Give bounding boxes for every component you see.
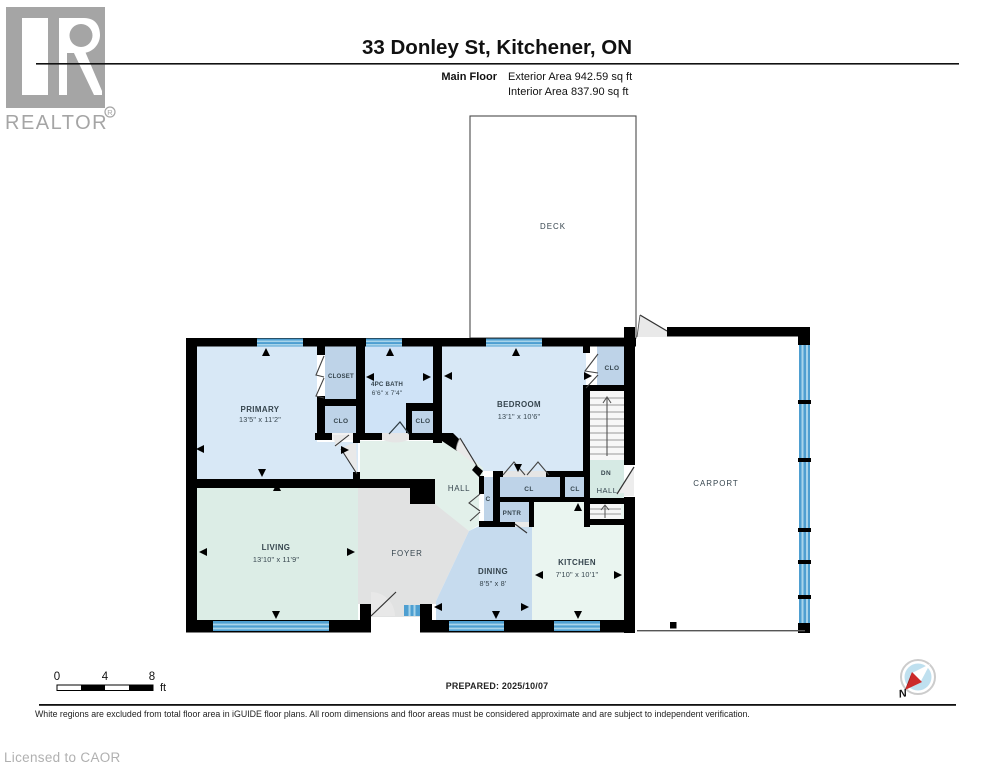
svg-text:White regions are excluded fro: White regions are excluded from total fl… — [35, 709, 750, 719]
svg-text:DECK: DECK — [540, 222, 566, 231]
svg-text:CARPORT: CARPORT — [693, 479, 738, 488]
svg-text:CLO: CLO — [416, 418, 431, 425]
svg-text:PRIMARY: PRIMARY — [241, 405, 280, 414]
svg-text:8: 8 — [149, 671, 155, 683]
svg-text:13'1" x 10'6": 13'1" x 10'6" — [498, 412, 541, 421]
svg-text:DINING: DINING — [478, 567, 508, 576]
svg-text:CLOSET: CLOSET — [328, 373, 354, 380]
svg-text:LIVING: LIVING — [262, 543, 291, 552]
svg-text:ft: ft — [160, 682, 166, 694]
svg-text:CL: CL — [570, 486, 579, 493]
svg-text:R: R — [107, 108, 113, 117]
svg-text:REALTOR: REALTOR — [5, 112, 108, 134]
svg-text:4PC BATH: 4PC BATH — [371, 381, 403, 388]
svg-text:4: 4 — [102, 671, 109, 683]
svg-text:KITCHEN: KITCHEN — [558, 558, 596, 567]
svg-text:HALL: HALL — [597, 486, 618, 495]
svg-text:PREPARED: 2025/10/07: PREPARED: 2025/10/07 — [446, 681, 549, 691]
svg-text:6'6" x 7'4": 6'6" x 7'4" — [372, 390, 403, 397]
svg-text:BEDROOM: BEDROOM — [497, 400, 541, 409]
svg-text:Interior Area 837.90 sq ft: Interior Area 837.90 sq ft — [508, 86, 628, 98]
svg-text:8'5" x 8': 8'5" x 8' — [479, 579, 506, 588]
svg-text:DN: DN — [601, 470, 611, 477]
svg-text:Licensed to CAOR: Licensed to CAOR — [4, 750, 121, 765]
svg-text:0: 0 — [54, 671, 60, 683]
svg-text:PNTR: PNTR — [503, 510, 522, 517]
svg-text:Main Floor: Main Floor — [441, 71, 497, 83]
svg-text:13'5" x 11'2": 13'5" x 11'2" — [239, 415, 281, 424]
svg-text:Exterior Area 942.59 sq ft: Exterior Area 942.59 sq ft — [508, 71, 632, 83]
svg-text:33 Donley St, Kitchener, ON: 33 Donley St, Kitchener, ON — [362, 36, 632, 59]
svg-text:C: C — [485, 496, 490, 503]
svg-text:HALL: HALL — [448, 484, 470, 493]
svg-text:CLO: CLO — [605, 365, 620, 372]
svg-text:FOYER: FOYER — [391, 549, 422, 558]
svg-text:CL: CL — [524, 486, 533, 493]
svg-text:CLO: CLO — [334, 418, 349, 425]
svg-text:13'10" x 11'9": 13'10" x 11'9" — [253, 555, 300, 564]
svg-text:7'10" x 10'1": 7'10" x 10'1" — [556, 570, 599, 579]
